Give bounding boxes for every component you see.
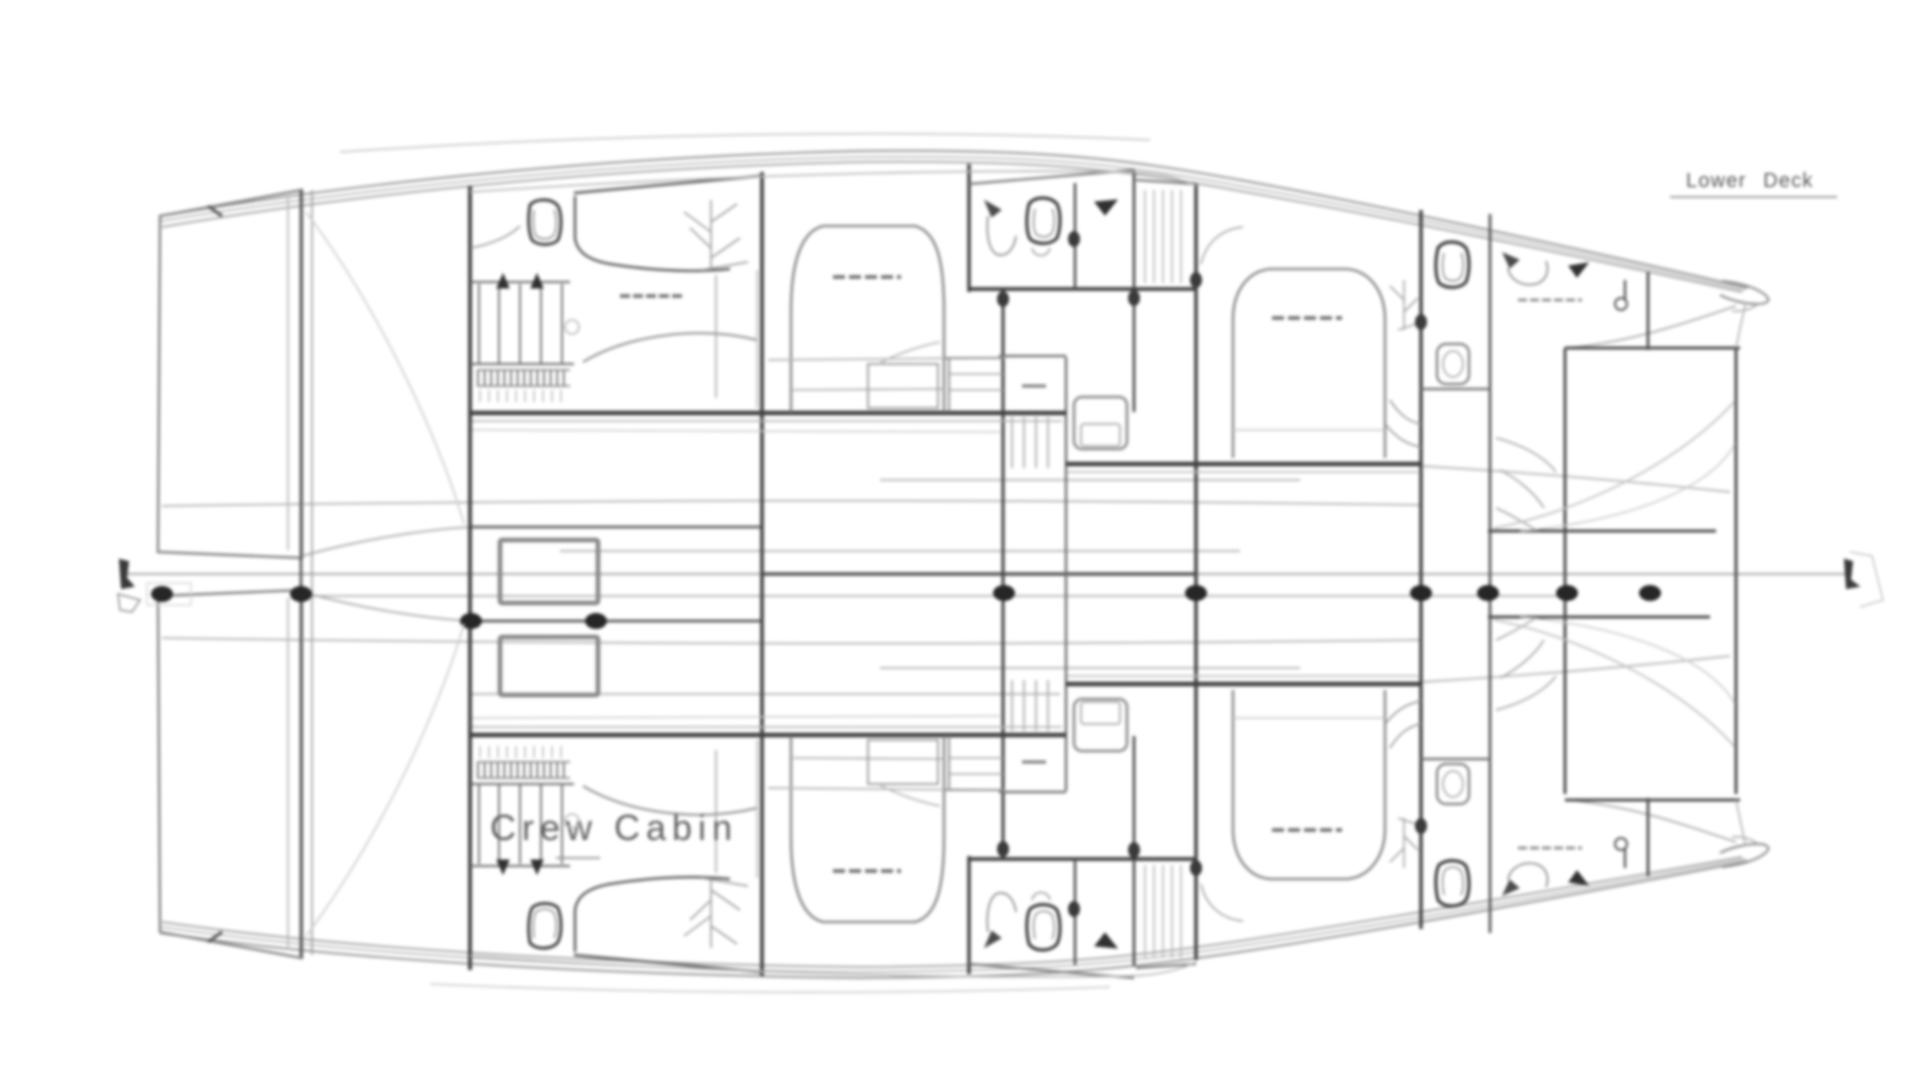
- svg-text:Crew Cabin: Crew Cabin: [490, 807, 738, 848]
- svg-text:Lower Deck: Lower Deck: [1686, 170, 1814, 192]
